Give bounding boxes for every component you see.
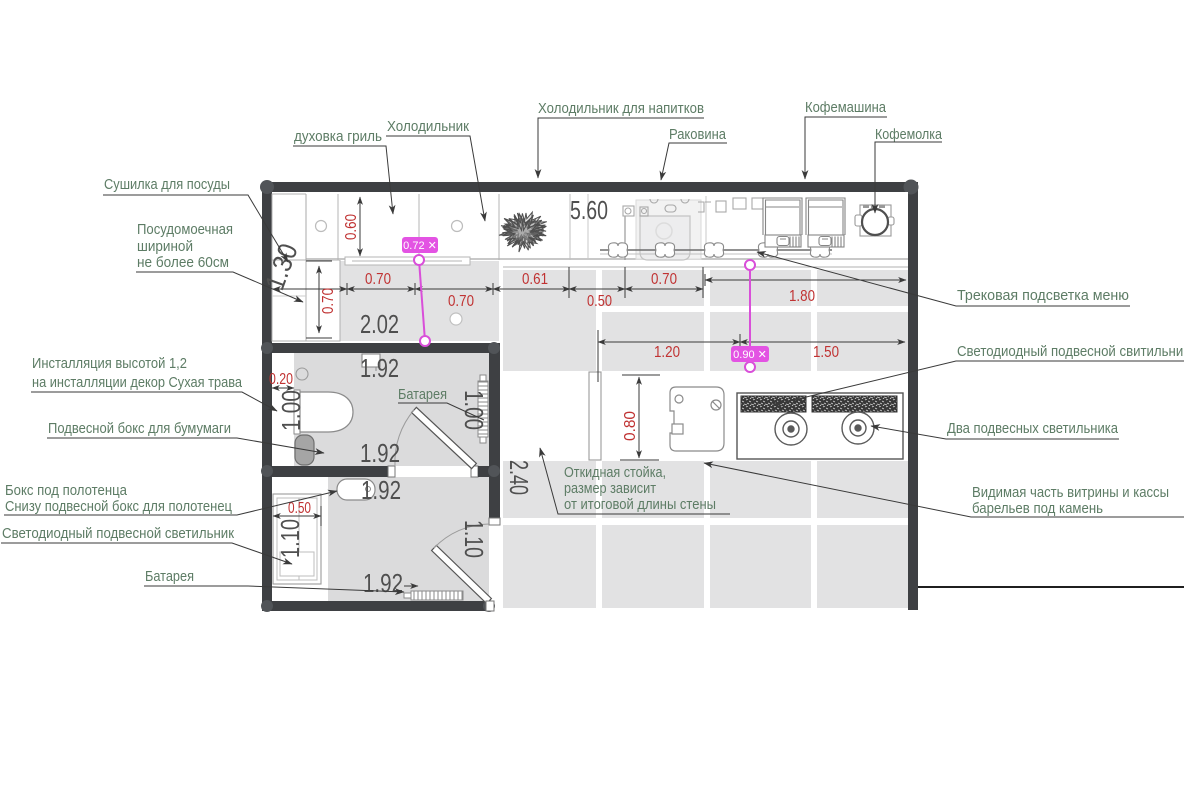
svg-text:Батарея: Батарея	[398, 386, 447, 403]
svg-text:Холодильник для напитков: Холодильник для напитков	[538, 100, 704, 117]
svg-text:0.50: 0.50	[288, 500, 311, 517]
svg-text:0.70: 0.70	[448, 293, 474, 310]
svg-text:Батарея: Батарея	[145, 568, 194, 585]
svg-text:0.72 ✕: 0.72 ✕	[403, 240, 437, 252]
svg-text:2.40: 2.40	[504, 460, 534, 495]
svg-text:0.90 ✕: 0.90 ✕	[733, 349, 767, 361]
svg-text:Светодиодный подвесной светиль: Светодиодный подвесной светильник	[2, 525, 234, 542]
svg-text:1.10: 1.10	[275, 519, 305, 558]
svg-text:0.50: 0.50	[587, 293, 612, 310]
svg-text:0.70: 0.70	[651, 271, 677, 288]
svg-text:Сушилка для посуды: Сушилка для посуды	[104, 176, 230, 193]
svg-text:1.50: 1.50	[813, 344, 839, 361]
svg-text:Снизу подвесной бокс для полот: Снизу подвесной бокс для полотенец	[5, 498, 232, 515]
svg-text:1.00: 1.00	[459, 390, 489, 430]
svg-text:духовка гриль: духовка гриль	[294, 128, 382, 145]
svg-text:1.92: 1.92	[360, 438, 400, 468]
svg-text:1.10: 1.10	[459, 520, 489, 558]
svg-text:1.92: 1.92	[360, 353, 399, 383]
svg-text:1.80: 1.80	[789, 288, 815, 305]
svg-text:Откидная стойка,: Откидная стойка,	[564, 464, 666, 481]
svg-text:Холодильник: Холодильник	[387, 118, 469, 135]
svg-text:Два подвесных светильника: Два подвесных светильника	[947, 420, 1119, 437]
svg-text:не более 60см: не более 60см	[137, 254, 229, 271]
svg-text:Кофемашина: Кофемашина	[805, 99, 887, 116]
svg-text:Раковина: Раковина	[669, 126, 727, 143]
svg-text:барельев под камень: барельев под камень	[972, 500, 1103, 517]
svg-text:Трековая подсветка меню: Трековая подсветка меню	[957, 287, 1129, 304]
svg-text:1.92: 1.92	[363, 568, 403, 598]
svg-text:1.00: 1.00	[276, 390, 306, 431]
svg-text:0.20: 0.20	[269, 371, 293, 388]
svg-text:0.70: 0.70	[365, 271, 391, 288]
svg-text:Посудомоечная: Посудомоечная	[137, 221, 233, 238]
svg-text:Кофемолка: Кофемолка	[875, 126, 943, 143]
svg-text:2.02: 2.02	[360, 309, 399, 339]
svg-text:1.92: 1.92	[361, 475, 401, 505]
svg-text:размер зависит: размер зависит	[564, 480, 656, 497]
svg-text:Подвесной бокс для бумумаги: Подвесной бокс для бумумаги	[48, 420, 231, 437]
svg-text:Инсталляция высотой 1,2: Инсталляция высотой 1,2	[32, 355, 187, 372]
svg-text:шириной: шириной	[137, 238, 193, 255]
svg-text:1.20: 1.20	[654, 344, 680, 361]
svg-text:от итоговой длины стены: от итоговой длины стены	[564, 496, 716, 513]
svg-text:Светодиодный подвесной свитиль: Светодиодный подвесной свитильник	[957, 343, 1184, 360]
svg-text:0.70: 0.70	[320, 288, 337, 314]
svg-text:на инсталляции декор Сухая тра: на инсталляции декор Сухая трава	[32, 374, 243, 391]
svg-text:5.60: 5.60	[570, 195, 608, 225]
svg-text:0.80: 0.80	[622, 411, 639, 441]
svg-text:0.61: 0.61	[522, 271, 548, 288]
svg-text:0.60: 0.60	[343, 214, 360, 240]
svg-text:Бокс под полотенца: Бокс под полотенца	[5, 482, 128, 499]
svg-text:Видимая часть витрины и кассы: Видимая часть витрины и кассы	[972, 484, 1169, 501]
